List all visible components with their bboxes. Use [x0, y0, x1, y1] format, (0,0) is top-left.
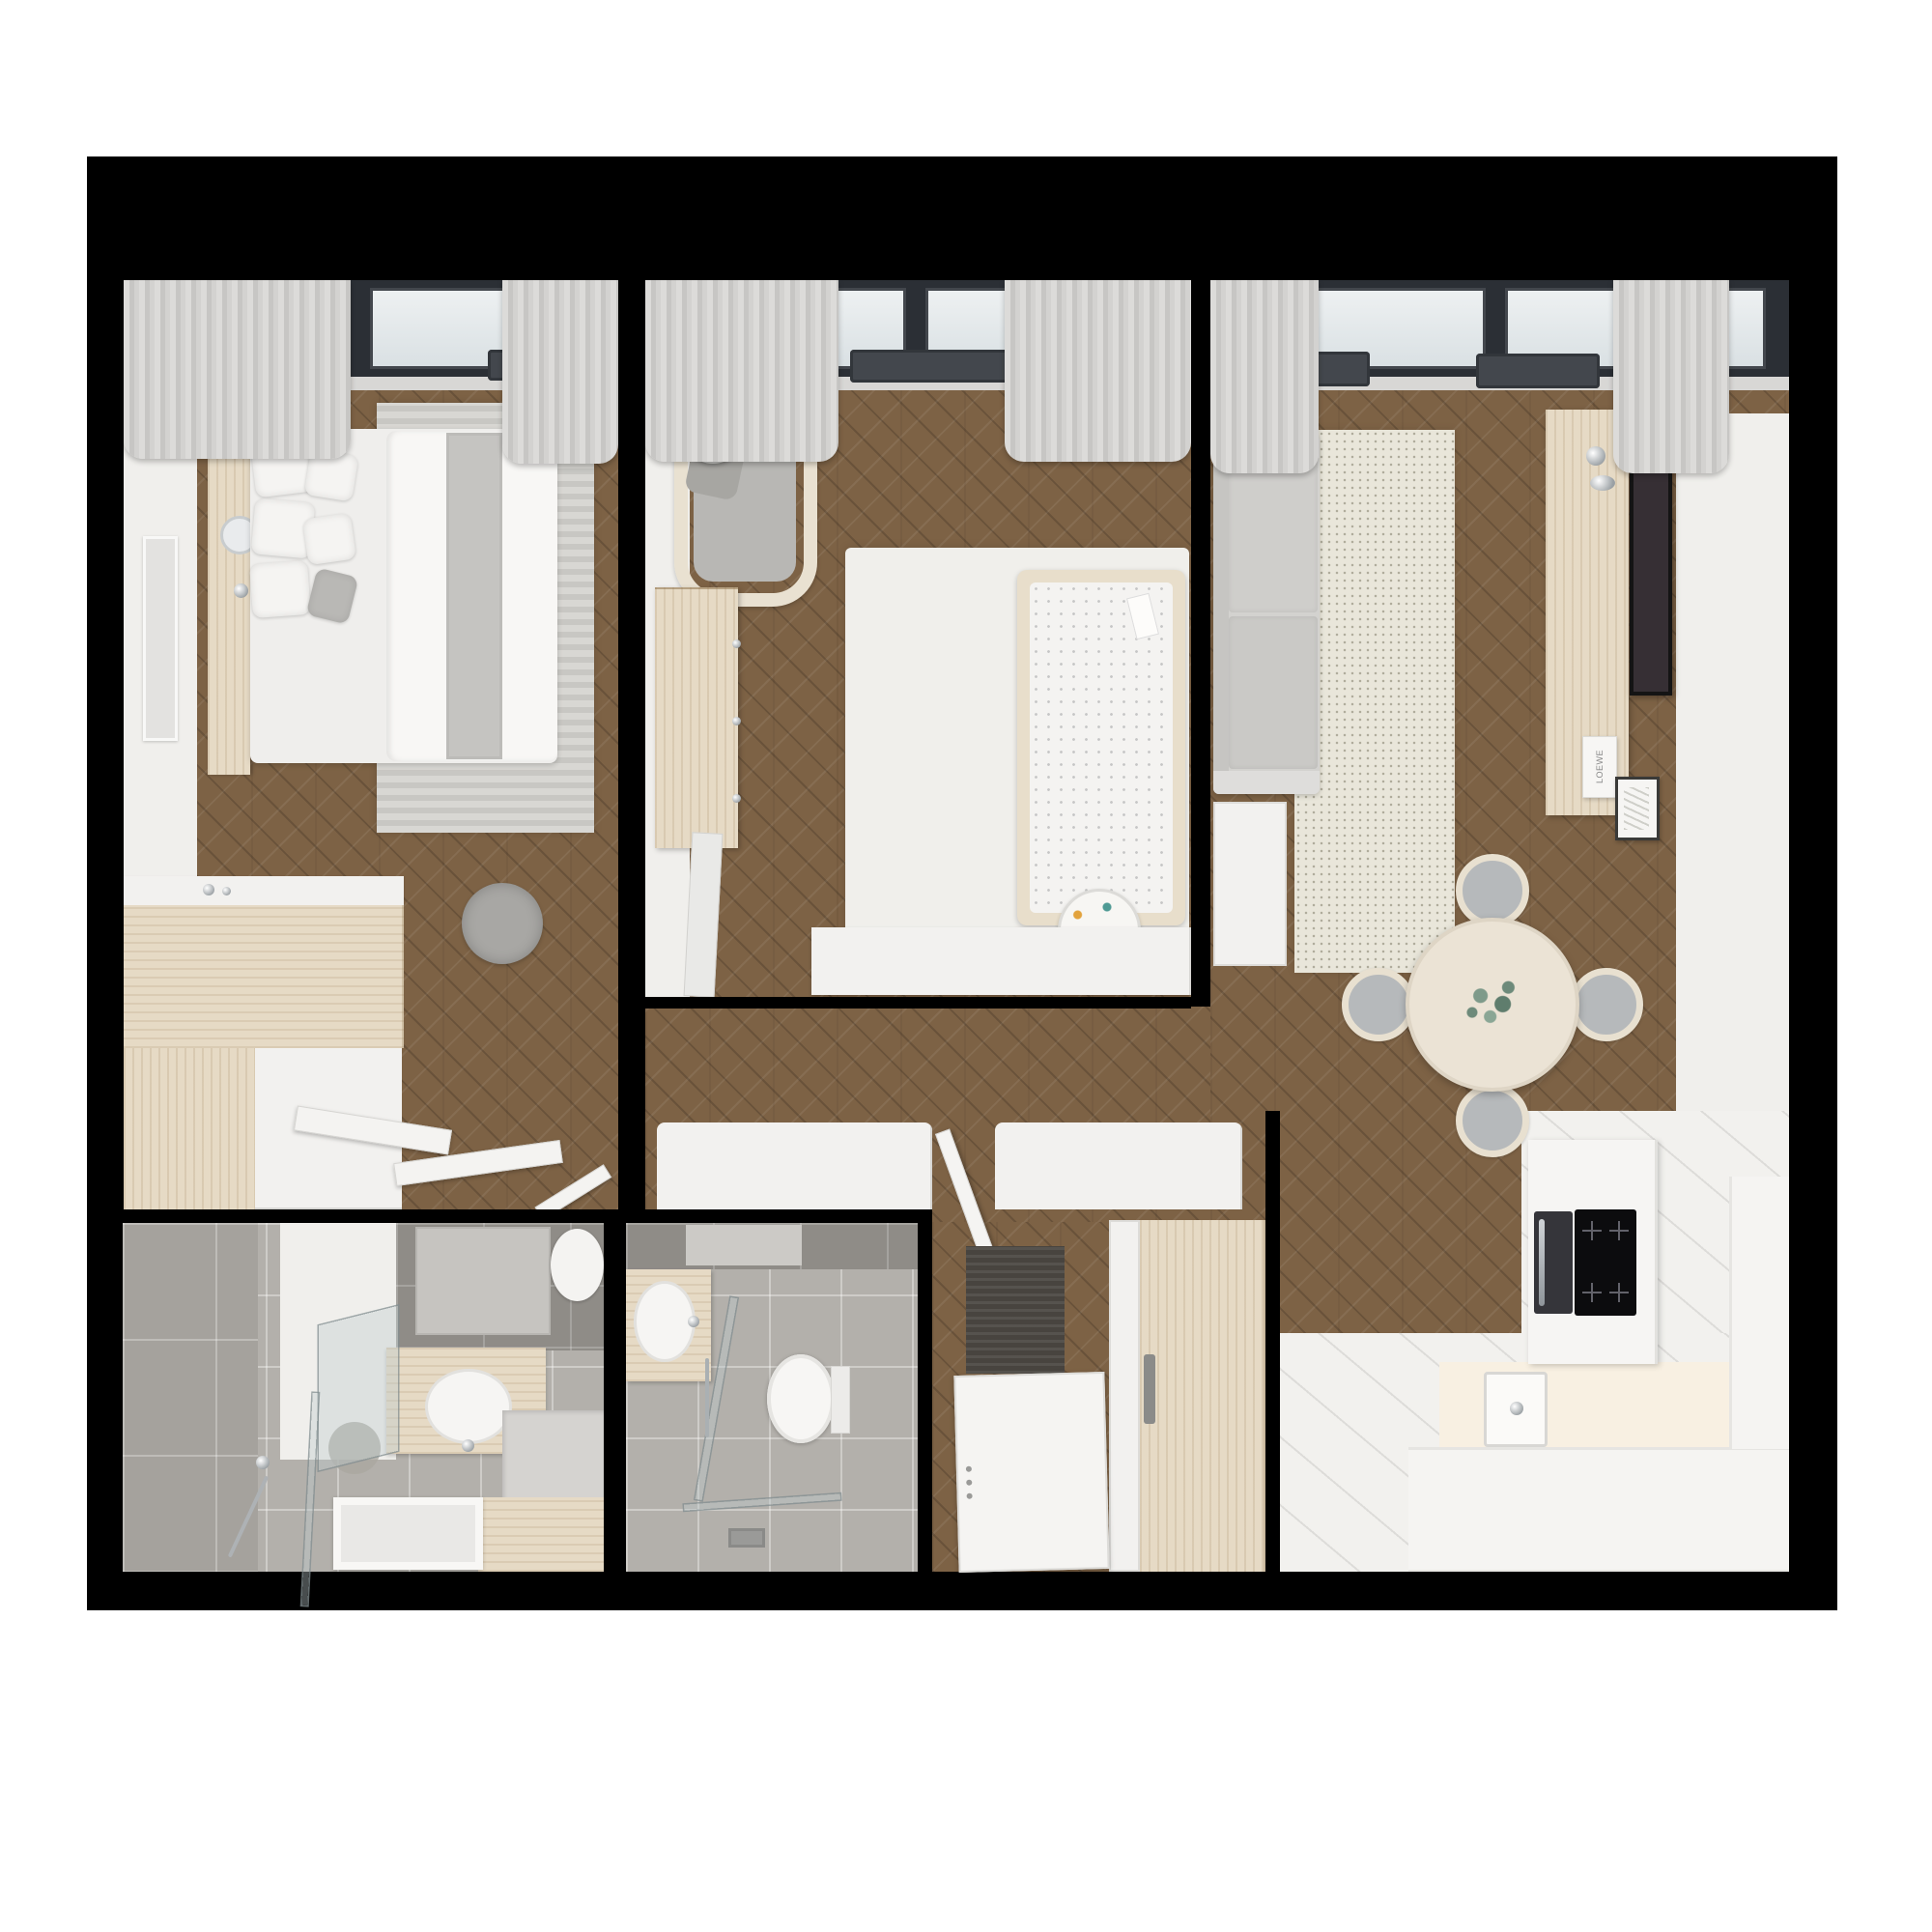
dresser-knob: [732, 639, 741, 648]
bath1-cabinet: [478, 1497, 604, 1572]
nursery-sideboard: [811, 927, 1191, 995]
dining-chair: [1456, 854, 1529, 927]
radiator: [850, 350, 1024, 383]
crib: [1017, 570, 1185, 925]
burner-icon: [1582, 1221, 1602, 1240]
bath2-mat: [686, 1225, 802, 1265]
living-right-wall: [1676, 413, 1789, 1111]
entry-wardrobe: [1140, 1220, 1265, 1572]
apartment-plan: Surf Shacks: [87, 156, 1837, 1610]
table-plant: [1460, 968, 1529, 1037]
bath1-mirror: [415, 1227, 551, 1335]
bath2-toilet: [767, 1354, 835, 1443]
curtain: [1210, 280, 1319, 473]
towel-bar: [705, 1358, 709, 1437]
door-hardware-icon: [966, 1480, 972, 1486]
curtain: [1613, 280, 1729, 473]
living-side-table: [1213, 802, 1287, 966]
hand-shower-icon: [256, 1456, 270, 1469]
curtain: [502, 280, 618, 464]
bath1-sink: [425, 1369, 512, 1444]
wall-bath1-bath2: [604, 1223, 626, 1572]
dresser-knob: [732, 717, 741, 725]
door-hardware-icon: [967, 1493, 973, 1499]
doormat: [966, 1246, 1065, 1374]
dining-chair: [1456, 1084, 1529, 1157]
wardrobe-door-panel: [1109, 1220, 1140, 1572]
door-hardware-icon: [966, 1466, 972, 1472]
shower-glass-panel: [319, 1306, 398, 1470]
floor-drain: [728, 1528, 765, 1548]
bedroom-pouf: [462, 883, 543, 964]
nursery-dresser: [655, 587, 738, 848]
bath1-toilet: [551, 1229, 604, 1301]
radiator: [1476, 354, 1600, 388]
pillow: [302, 513, 356, 565]
wall-hall-bathrooms: [123, 1209, 932, 1223]
wall-nursery-hall: [645, 997, 1191, 1009]
curtain: [124, 280, 351, 459]
wall-corridor-kitchen: [1265, 1111, 1280, 1572]
sofa-cushion: [1229, 616, 1318, 769]
decor-frame: [1615, 777, 1660, 840]
perfume-bottle-icon: [222, 887, 231, 895]
wall-bath2-corridor: [918, 1223, 932, 1572]
pillow: [249, 560, 311, 618]
oven: [1534, 1211, 1573, 1314]
faucet-icon: [688, 1316, 699, 1327]
wall-bedroom-nursery: [618, 156, 645, 1121]
bath2-toilet-tank: [831, 1366, 850, 1434]
wall-nursery-living: [1191, 156, 1210, 847]
hall-console: [995, 1122, 1242, 1209]
entry-door-leaf: [953, 1372, 1109, 1573]
bedroom-wardrobe: [124, 1048, 255, 1209]
induction-cooktop: [1575, 1209, 1636, 1316]
faucet-icon: [1510, 1402, 1523, 1415]
console-dish-icon: [1590, 475, 1615, 491]
curtain: [1005, 280, 1191, 462]
kitchen-counter-right: [1729, 1177, 1789, 1449]
wall-tv: [1630, 446, 1672, 696]
bedroom-wall-lamp-icon: [234, 583, 248, 598]
burner-icon: [1609, 1283, 1629, 1302]
kitchen-counter-bottom: [1408, 1447, 1789, 1572]
media-box: LOEWE: [1582, 736, 1617, 798]
sofa-backrest: [1213, 435, 1229, 794]
sofa-cushion: [1229, 460, 1318, 612]
burner-icon: [1582, 1283, 1602, 1302]
dining-table: [1406, 918, 1579, 1092]
bath1-tray: [333, 1497, 483, 1570]
kitchen-appliance-block: [1528, 1140, 1658, 1364]
floor-plan-page: Surf Shacks: [0, 0, 1932, 1932]
kitchen-sink: [1484, 1372, 1548, 1447]
bath2-sink: [634, 1281, 696, 1362]
vanity-counter-top: [124, 876, 404, 905]
bed-blanket: [446, 433, 502, 759]
bath1-left-wall-tiles: [123, 1223, 258, 1572]
curtain: [645, 280, 838, 462]
console-dish-icon: [1586, 446, 1605, 466]
burner-icon: [1609, 1221, 1629, 1240]
media-box-label: LOEWE: [1595, 750, 1605, 783]
dresser-knob: [732, 794, 741, 803]
bedroom-wall-art: [143, 536, 178, 741]
dining-chair: [1570, 968, 1643, 1041]
kitchen-glow-floor: [1439, 1362, 1729, 1451]
vanity-desk: [124, 905, 404, 1048]
faucet-icon: [462, 1439, 474, 1452]
decor-frame-print: [1624, 787, 1649, 830]
wardrobe-handle: [1144, 1354, 1155, 1424]
sofa-armrest: [1213, 771, 1320, 794]
perfume-bottle-icon: [203, 884, 214, 895]
oven-handle: [1539, 1219, 1545, 1306]
dining-chair: [1342, 968, 1415, 1041]
hall-console: [657, 1122, 932, 1209]
sofa: [1213, 435, 1320, 794]
